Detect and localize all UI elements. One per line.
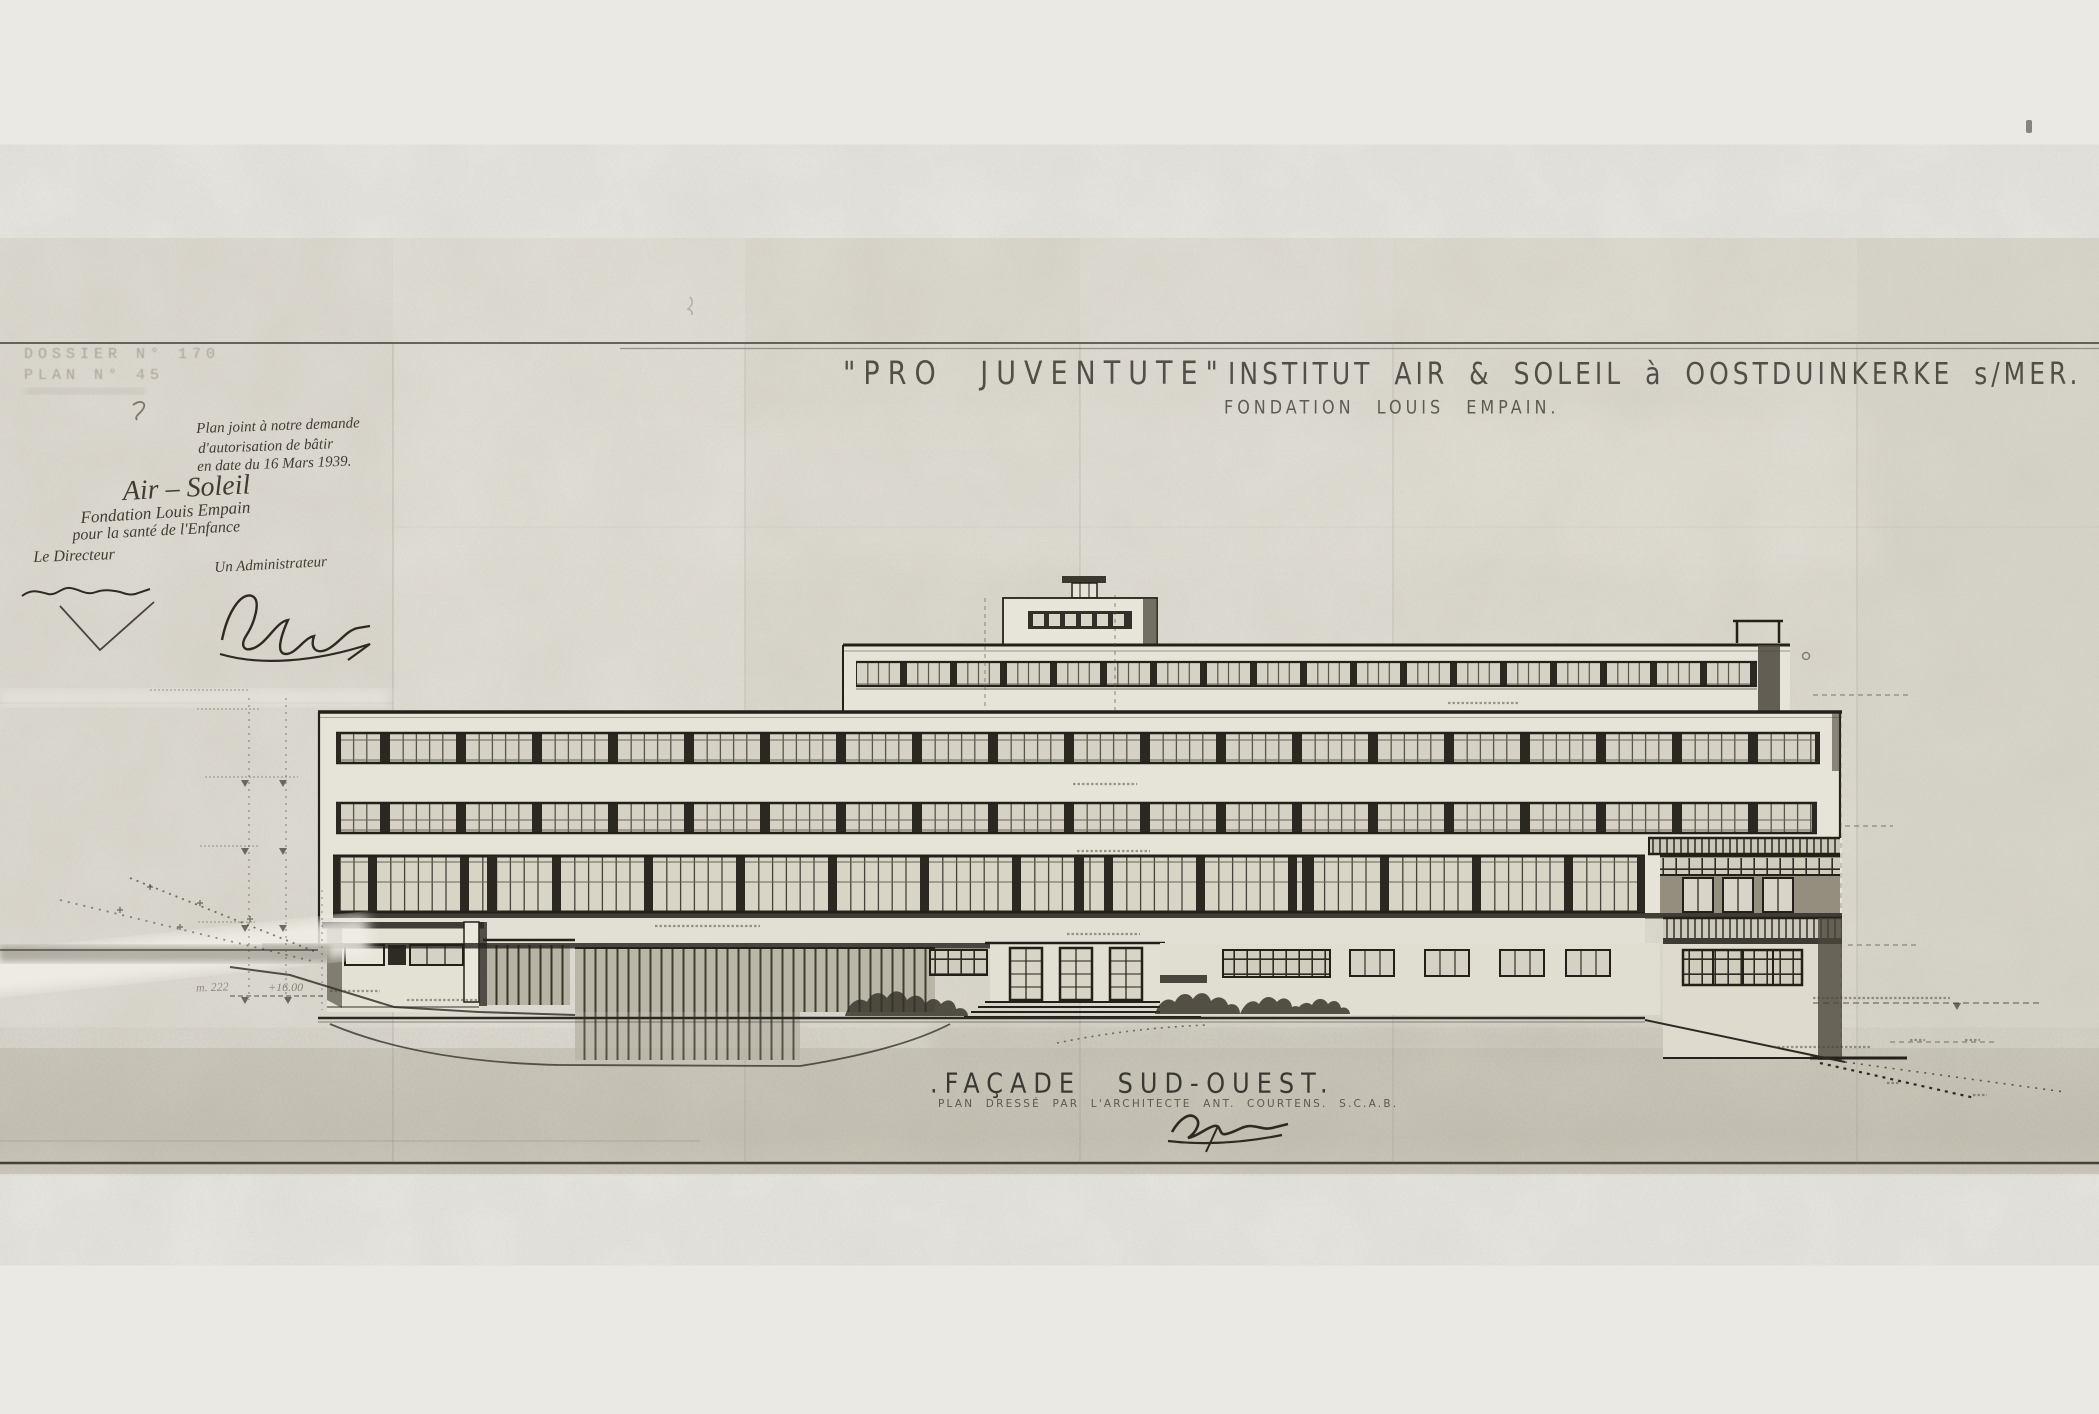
- balcony-rail-upper: [1648, 838, 1840, 855]
- director-label: Le Directeur: [33, 546, 115, 567]
- right-loggia: [1660, 856, 1840, 913]
- floor-slab: [333, 913, 1842, 919]
- ground-glazing: [333, 856, 1645, 912]
- dossier-stamp-line2: PLAN N° 45: [24, 367, 164, 384]
- screenshot-root: DOSSIER N° 170 PLAN N° 45 Plan joint à n…: [0, 0, 2099, 1414]
- title-project: "PRO JUVENTUTE": [843, 355, 1226, 392]
- elevation-drawing: [0, 0, 2099, 1414]
- title-institute: INSTITUT AIR & SOLEIL à OOSTDUINKERKE s/…: [1228, 356, 2081, 391]
- caption-architect: PLAN DRESSÉ PAR L'ARCHITECTE ANT. COURTE…: [938, 1098, 1398, 1110]
- base-windows-right: [1160, 943, 1660, 1015]
- level-annotation-left: m. 222: [196, 979, 229, 995]
- level-annotation-plus: +16.00: [268, 980, 303, 995]
- dossier-stamp-line1: DOSSIER N° 170: [24, 346, 220, 363]
- title-subtitle: FONDATION LOUIS EMPAIN.: [1224, 396, 1560, 418]
- window-band-upper: [336, 733, 1820, 763]
- balcony-rail-lower: [1663, 918, 1842, 944]
- window-band-lower: [336, 803, 1817, 833]
- caption-facade: .FAÇADE SUD-OUEST.: [930, 1067, 1335, 1099]
